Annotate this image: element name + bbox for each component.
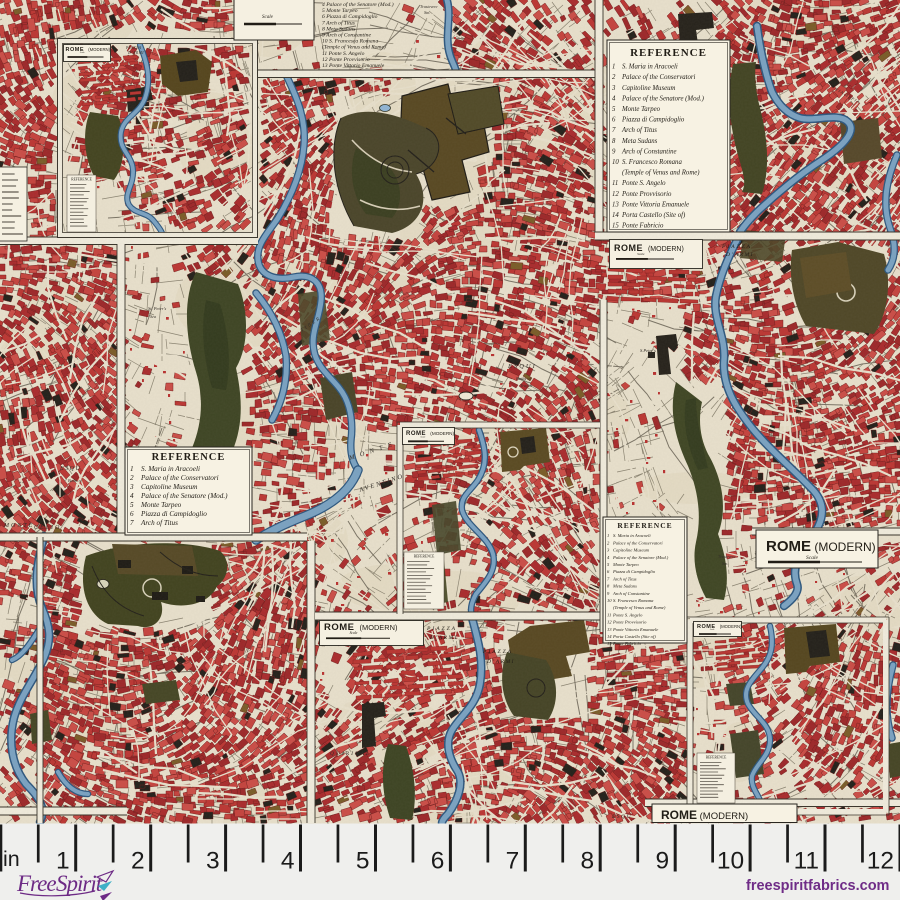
- svg-text:Stn.: Stn.: [722, 561, 728, 566]
- svg-text:REFERENCE: REFERENCE: [414, 555, 435, 559]
- svg-text:ESQU: ESQU: [611, 814, 632, 820]
- svg-text:in: in: [3, 847, 20, 871]
- svg-text:4: 4: [281, 848, 295, 875]
- svg-text:PIAZZA: PIAZZA: [721, 244, 752, 250]
- svg-text:12: 12: [612, 191, 619, 198]
- svg-text:7 Arch of Titus: 7 Arch of Titus: [322, 19, 355, 26]
- svg-text:REFERENCE: REFERENCE: [630, 47, 707, 59]
- svg-text:5: 5: [130, 501, 134, 509]
- svg-text:Trajan: Trajan: [520, 383, 533, 388]
- svg-text:15: 15: [612, 223, 619, 230]
- svg-text:Piazza di Campidoglio: Piazza di Campidoglio: [140, 510, 207, 518]
- svg-text:7: 7: [130, 519, 134, 527]
- svg-text:Baths of: Baths of: [68, 478, 83, 483]
- svg-text:Porta Castello (Site of): Porta Castello (Site of): [621, 212, 686, 219]
- svg-text:6: 6: [612, 117, 616, 124]
- svg-text:S. Francesco Romana: S. Francesco Romana: [622, 159, 682, 166]
- svg-text:Meta Sudans: Meta Sudans: [621, 138, 658, 145]
- svg-text:1: 1: [607, 533, 609, 538]
- svg-text:(Temple of Venus and Rome): (Temple of Venus and Rome): [322, 44, 386, 51]
- svg-text:2: 2: [131, 848, 145, 875]
- svg-text:8 Meta Sudans: 8 Meta Sudans: [322, 26, 355, 32]
- svg-text:ROME (MODERN): ROME (MODERN): [324, 622, 397, 633]
- svg-text:12: 12: [867, 848, 894, 875]
- svg-text:Ponte Vittoria Emanuele: Ponte Vittoria Emanuele: [612, 627, 658, 632]
- svg-text:10 S. Francesca Romana: 10 S. Francesca Romana: [322, 39, 378, 45]
- svg-text:3: 3: [611, 85, 616, 92]
- svg-text:Ponte S. Angelo: Ponte S. Angelo: [621, 180, 666, 187]
- svg-text:PIAZZA: PIAZZA: [125, 46, 142, 50]
- svg-text:Trastevere: Trastevere: [718, 554, 736, 559]
- svg-text:2: 2: [130, 474, 134, 482]
- svg-text:9 Arch of Constantine: 9 Arch of Constantine: [322, 32, 371, 39]
- svg-text:Palace of the Conservatori: Palace of the Conservatori: [612, 540, 663, 545]
- svg-text:Capitoline Museum: Capitoline Museum: [613, 548, 650, 553]
- svg-text:3: 3: [206, 848, 220, 875]
- svg-text:Scale: Scale: [710, 629, 715, 631]
- svg-text:S. Maria in Aracoeli: S. Maria in Aracoeli: [613, 533, 651, 538]
- svg-text:Capitoline Museum: Capitoline Museum: [141, 483, 198, 491]
- svg-text:1: 1: [130, 465, 134, 473]
- svg-text:11 Ponte S. Angelo: 11 Ponte S. Angelo: [322, 51, 365, 57]
- svg-text:Monte Tarpeo: Monte Tarpeo: [140, 501, 182, 509]
- svg-text:REFERENCE: REFERENCE: [706, 756, 727, 760]
- svg-text:Baths of: Baths of: [516, 376, 532, 381]
- svg-text:Scale: Scale: [420, 436, 425, 438]
- svg-text:Palace of the Conservatori: Palace of the Conservatori: [140, 474, 219, 482]
- svg-text:S.Peter's: S.Peter's: [640, 348, 656, 353]
- svg-text:13: 13: [607, 627, 612, 632]
- svg-text:ROME (MODERN): ROME (MODERN): [766, 538, 876, 555]
- svg-text:Palace of the Conservatori: Palace of the Conservatori: [621, 74, 696, 81]
- svg-text:Palace of the Senatore (Mod.): Palace of the Senatore (Mod.): [621, 95, 705, 102]
- svg-text:Piazza di Campidoglio: Piazza di Campidoglio: [621, 117, 685, 124]
- svg-text:ESQU: ESQU: [59, 466, 81, 472]
- svg-text:5: 5: [612, 106, 616, 113]
- svg-text:S. Maria in Aracoeli: S. Maria in Aracoeli: [622, 64, 678, 71]
- svg-text:Scale: Scale: [350, 631, 358, 635]
- svg-text:Scale: Scale: [262, 15, 274, 20]
- svg-text:PIAZZA: PIAZZA: [482, 649, 513, 655]
- svg-text:12: 12: [607, 620, 612, 625]
- svg-text:9: 9: [612, 148, 616, 155]
- svg-text:ROME (MODERN): ROME (MODERN): [661, 808, 748, 822]
- svg-text:D’ARMI: D’ARMI: [429, 635, 458, 641]
- svg-text:6: 6: [431, 848, 445, 875]
- svg-text:Porta Castello (Site of): Porta Castello (Site of): [612, 634, 656, 639]
- svg-text:D’ARMI: D’ARMI: [725, 252, 754, 258]
- svg-text:12 Ponte Provvisorio: 12 Ponte Provvisorio: [322, 57, 370, 63]
- svg-text:(Temple of Venus and Rome): (Temple of Venus and Rome): [613, 605, 666, 610]
- svg-text:3: 3: [129, 483, 134, 491]
- svg-text:Palace of the Senatore (Mod.): Palace of the Senatore (Mod.): [612, 555, 669, 560]
- svg-text:Capitoline Museum: Capitoline Museum: [622, 85, 676, 92]
- svg-text:Arch of Titus: Arch of Titus: [140, 519, 178, 527]
- svg-text:4 Palace of the Senatore (Mod: 4 Palace of the Senatore (Mod.): [322, 1, 394, 8]
- svg-text:11: 11: [607, 612, 611, 617]
- svg-text:ESQUI: ESQUI: [507, 363, 537, 370]
- svg-text:PIAZZA: PIAZZA: [426, 626, 457, 632]
- svg-text:15: 15: [607, 641, 612, 646]
- svg-text:Sea: Sea: [150, 314, 156, 319]
- svg-text:Spirit: Spirit: [56, 871, 103, 896]
- svg-text:14: 14: [612, 212, 619, 219]
- svg-text:Scale: Scale: [637, 252, 645, 256]
- svg-text:8: 8: [612, 138, 616, 145]
- svg-text:10: 10: [607, 598, 612, 603]
- svg-text:2: 2: [612, 74, 616, 81]
- svg-text:Monte Tarpeo: Monte Tarpeo: [621, 106, 661, 113]
- svg-text:13 Ponte Vittorio Emanuele: 13 Ponte Vittorio Emanuele: [322, 63, 385, 69]
- svg-text:6: 6: [130, 510, 134, 518]
- svg-text:6 Piazza di Campidoglio: 6 Piazza di Campidoglio: [322, 14, 378, 20]
- svg-text:7: 7: [506, 848, 520, 875]
- svg-text:13: 13: [612, 201, 619, 208]
- svg-text:Ponte Provvisorio: Ponte Provvisorio: [621, 191, 672, 198]
- svg-text:4: 4: [130, 492, 134, 500]
- svg-text:Ponte Fabricio: Ponte Fabricio: [621, 223, 664, 230]
- svg-text:MONTE: MONTE: [3, 523, 34, 529]
- svg-text:5 Monte Tarpeo: 5 Monte Tarpeo: [322, 8, 358, 14]
- svg-text:Arch of Titus: Arch of Titus: [612, 576, 637, 581]
- svg-text:D’ARMI: D’ARMI: [486, 659, 515, 665]
- svg-text:Trastevere: Trastevere: [420, 4, 438, 9]
- svg-text:5: 5: [356, 848, 370, 875]
- svg-text:Meta Sudans: Meta Sudans: [612, 584, 637, 589]
- svg-text:8: 8: [581, 848, 595, 875]
- svg-text:QUIRINAL: QUIRINAL: [330, 751, 371, 757]
- svg-text:Arch of Titus: Arch of Titus: [621, 127, 657, 134]
- svg-text:11: 11: [612, 180, 618, 187]
- svg-text:Ponte Provvisorio: Ponte Provvisorio: [612, 620, 647, 625]
- svg-text:Ponte Fabricio: Ponte Fabricio: [612, 641, 642, 646]
- svg-text:S. Giovanni: S. Giovanni: [155, 636, 174, 641]
- svg-text:Arch of Constantine: Arch of Constantine: [612, 591, 650, 596]
- svg-text:10: 10: [717, 848, 744, 875]
- svg-text:Free: Free: [16, 871, 56, 896]
- svg-text:Palace of the Senatore (Mod.): Palace of the Senatore (Mod.): [140, 492, 228, 500]
- svg-text:S. Francesco Romana: S. Francesco Romana: [613, 598, 654, 603]
- svg-text:REFERENCE: REFERENCE: [71, 178, 92, 182]
- svg-text:(Temple of Venus and Rome): (Temple of Venus and Rome): [622, 170, 700, 177]
- svg-text:Monte Tarpeo: Monte Tarpeo: [612, 562, 639, 567]
- svg-text:7: 7: [612, 127, 616, 134]
- svg-text:Stn.: Stn.: [424, 10, 430, 15]
- svg-text:CELIO: CELIO: [34, 525, 61, 531]
- svg-text:4: 4: [612, 95, 616, 102]
- svg-text:REFERENCE: REFERENCE: [617, 521, 672, 530]
- svg-text:14: 14: [607, 634, 612, 639]
- svg-text:D’ARMI: D’ARMI: [127, 51, 144, 55]
- svg-text:1: 1: [612, 64, 615, 71]
- svg-text:S. Maria in Aracoeli: S. Maria in Aracoeli: [141, 465, 200, 473]
- svg-text:Scale: Scale: [80, 52, 85, 54]
- svg-text:freespiritfabrics.com: freespiritfabrics.com: [746, 878, 889, 894]
- svg-text:11: 11: [794, 848, 819, 875]
- svg-text:Arch of Constantine: Arch of Constantine: [621, 148, 677, 155]
- svg-text:Ponte S. Angelo: Ponte S. Angelo: [612, 612, 643, 617]
- svg-text:10: 10: [612, 159, 619, 166]
- svg-text:Ponte Vittoria Emanuele: Ponte Vittoria Emanuele: [621, 201, 689, 208]
- svg-text:REFERENCE: REFERENCE: [152, 452, 226, 463]
- svg-text:9: 9: [656, 848, 670, 875]
- svg-text:St. Peter's: St. Peter's: [148, 306, 166, 311]
- svg-text:Scale: Scale: [806, 555, 818, 561]
- svg-text:Piazza di Campidoglio: Piazza di Campidoglio: [612, 569, 656, 574]
